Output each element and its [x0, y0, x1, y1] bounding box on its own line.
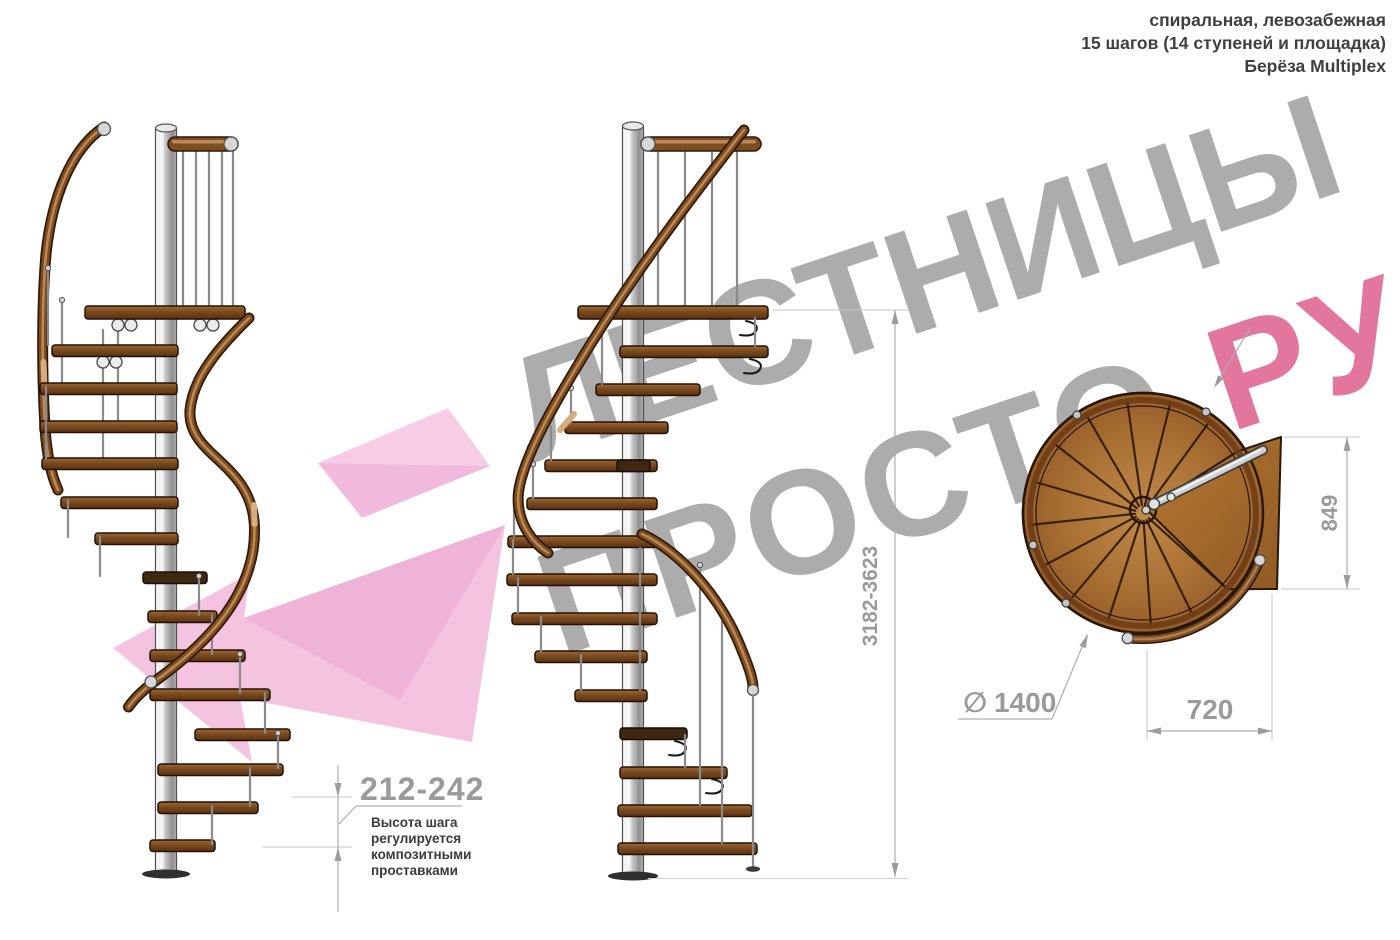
- plan-view: [1023, 327, 1281, 644]
- baluster-knob: [196, 573, 201, 578]
- step-height-note-3: композитными: [371, 847, 471, 862]
- step: [52, 345, 178, 357]
- step: [565, 422, 668, 434]
- plan-width-label: 720: [1187, 694, 1234, 725]
- arrowhead-up: [1344, 437, 1351, 451]
- handrail-ball-joint: [1149, 499, 1160, 510]
- baluster-knob: [275, 730, 280, 735]
- leader-arrowhead: [1079, 634, 1088, 648]
- arrowhead-left: [1147, 728, 1161, 735]
- step: [40, 383, 177, 395]
- connector-disc: [194, 319, 206, 331]
- step: [158, 802, 258, 814]
- plan-depth-label: 849: [1317, 495, 1342, 532]
- title-line-material: Берёза Multiplex: [1081, 55, 1386, 78]
- diameter-symbol: ∅: [963, 687, 987, 718]
- baluster-knob: [697, 562, 702, 567]
- handrail-end-cap: [145, 676, 157, 688]
- landing-board: [85, 306, 245, 319]
- step: [148, 611, 217, 623]
- drawing-title-block: спиральная, левозабежная 15 шагов (14 ст…: [1081, 9, 1386, 78]
- rail-post-cap: [1254, 555, 1265, 566]
- step: [150, 689, 270, 701]
- step-bracket: [706, 779, 723, 794]
- center-hub: [1142, 506, 1150, 514]
- left-staircase-view: [40, 123, 290, 879]
- arrowhead-up: [892, 310, 899, 324]
- dimension-diameter: ∅1400: [958, 634, 1088, 719]
- connector-disc: [125, 319, 137, 331]
- baluster-top: [1029, 541, 1037, 549]
- leader-line: [1052, 635, 1087, 719]
- technical-drawing-page: ЛЕСТНИЦЫ ПРОСТО.РУ: [0, 0, 1400, 940]
- arrowhead-down: [335, 783, 342, 797]
- connector-disc: [97, 356, 109, 368]
- arrowhead-down: [892, 863, 899, 877]
- dimension-plan-depth: 849: [1281, 437, 1360, 589]
- pole-base: [142, 870, 190, 879]
- connector-disc: [112, 319, 124, 331]
- step: [512, 613, 657, 625]
- step-shadow: [617, 460, 650, 472]
- step-height-note-1: Высота шага: [371, 815, 458, 830]
- step: [42, 458, 178, 470]
- middle-staircase-view: [507, 122, 908, 881]
- rail-post-cap: [1122, 633, 1133, 644]
- handrail-ball-joint: [748, 685, 759, 696]
- baluster-foot: [746, 866, 760, 872]
- staircase-drawing: 3182-3623 212-242 Высота шага регулирует…: [0, 0, 1400, 940]
- pole-top-cap: [156, 124, 177, 132]
- baluster-top: [1202, 408, 1210, 416]
- step: [620, 767, 727, 779]
- arrowhead-right: [1258, 728, 1272, 735]
- step-height-note-2: регулируется: [371, 831, 461, 846]
- step: [620, 346, 768, 358]
- leader-line: [1216, 327, 1251, 384]
- dimension-total-height: 3182-3623: [772, 310, 908, 877]
- arrowhead-up: [335, 847, 342, 861]
- total-height-label: 3182-3623: [859, 546, 882, 646]
- handrail-collar: [1167, 493, 1175, 501]
- baluster-knob: [45, 265, 50, 270]
- step: [150, 840, 215, 852]
- step: [527, 498, 657, 510]
- handrail-sleeve: [254, 505, 255, 524]
- dimension-step-height: 212-242 Высота шага регулируется компози…: [262, 765, 484, 912]
- handrail-end-cap: [98, 123, 111, 136]
- step: [158, 764, 283, 776]
- step: [40, 421, 177, 433]
- step-bracket: [669, 741, 686, 756]
- step: [507, 574, 657, 586]
- pole-base: [608, 872, 658, 881]
- baluster-top: [1062, 599, 1070, 607]
- step-height-note-4: проставками: [371, 863, 458, 878]
- step-bracket: [744, 359, 761, 374]
- handrail-end-cap: [641, 137, 655, 151]
- leader-line: [339, 806, 356, 824]
- diameter-value: 1400: [994, 687, 1056, 718]
- step: [535, 651, 647, 663]
- arrowhead-down: [1344, 575, 1351, 589]
- handrail-end-cap: [224, 137, 238, 151]
- step-height-label: 212-242: [360, 771, 484, 807]
- baluster-top: [1073, 411, 1081, 419]
- step: [618, 843, 757, 855]
- step: [95, 533, 178, 545]
- step: [61, 497, 178, 509]
- leader-arrowhead: [1214, 375, 1224, 388]
- step: [596, 384, 700, 396]
- title-line-type: спиральная, левозабежная: [1081, 9, 1386, 32]
- step: [620, 728, 687, 740]
- step: [618, 805, 752, 817]
- connector-disc: [207, 319, 219, 331]
- spiral-handrail: [129, 318, 255, 707]
- baluster-knob: [59, 297, 64, 302]
- connector-disc: [110, 356, 122, 368]
- title-line-steps: 15 шагов (14 ступеней и площадка): [1081, 32, 1386, 55]
- diameter-label: ∅1400: [963, 687, 1056, 718]
- baluster-knob: [237, 651, 242, 656]
- pole-top-cap: [623, 122, 644, 130]
- step: [575, 690, 647, 702]
